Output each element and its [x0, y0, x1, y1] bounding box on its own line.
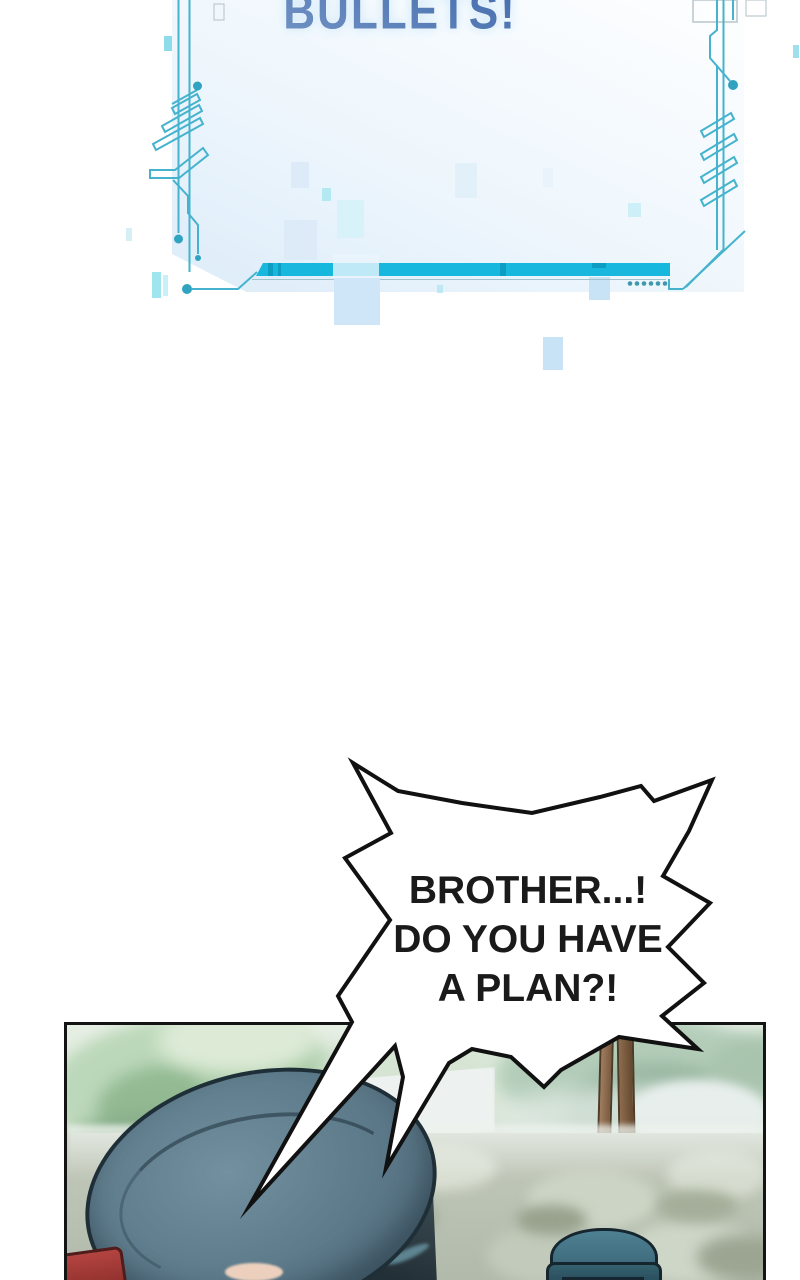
speech-line: DO YOU HAVE — [358, 915, 698, 964]
speech-line: A PLAN?! — [358, 964, 698, 1013]
speech-bubble — [0, 0, 800, 1280]
speech-line: BROTHER...! — [358, 866, 698, 915]
comic-page: BULLETS! — [0, 0, 800, 1280]
speech-bubble-text: BROTHER...! DO YOU HAVE A PLAN?! — [358, 866, 698, 1013]
